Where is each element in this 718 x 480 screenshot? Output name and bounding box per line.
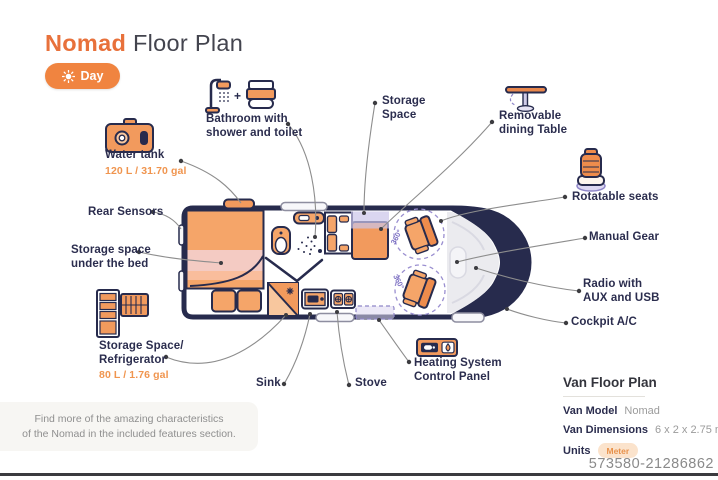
leader-line-water-tank [181,161,241,203]
fan-symbol [287,288,294,295]
listing-id: 573580-21286862 [589,456,714,472]
callout-heating-line2: Control Panel [414,371,502,385]
callout-fridge: Storage Space/ Refrigerator 80 L / 1.76 … [99,340,184,383]
callout-fridge-line2: Refrigerator [99,354,184,368]
callout-radio-line2: AUX and USB [583,292,660,306]
overhead-storage [351,212,389,229]
cab-step [452,313,484,322]
toilet-icon [247,81,275,108]
bottom-divider [0,473,718,476]
callout-rotatable-seats-label: Rotatable seats [572,191,659,205]
bed [187,211,264,289]
heating-control-icon [417,339,457,356]
refrigerator-icon [97,290,148,337]
features-note: Find more of the amazing characteristics… [0,402,258,451]
bench-cushion-right [238,291,262,312]
callout-water-tank: Water tank 120 L / 31.70 gal [105,149,186,178]
callout-radio-line1: Radio with [583,278,660,292]
roof-window [281,203,327,211]
page-title-accent: Nomad [45,30,126,56]
plus-icon: + [234,89,241,103]
callout-rear-sensors-label: Rear Sensors [88,206,163,220]
info-row-van-model: Van Model Nomad [563,405,715,417]
rotatable-seat-icon [577,149,605,191]
van-dimensions-value: 6 x 2 x 2.75 m [655,424,718,436]
callout-dining-table-line2: dining Table [499,124,567,138]
callout-radio: Radio with AUX and USB [583,278,660,305]
callout-heating-line1: Heating System [414,357,502,371]
sun-icon [62,70,75,83]
rear-sensor-bottom [179,271,184,291]
callout-storage-space-line2: Space [382,109,426,123]
water-tank-icon [106,119,153,152]
callout-bathroom-line2: shower and toilet [206,127,302,141]
callout-cockpit-ac-label: Cockpit A/C [571,316,637,330]
shower-icon [206,80,230,113]
callout-dining-table-line1: Removable [499,110,567,124]
info-panel-title: Van Floor Plan [563,375,715,390]
callout-manual-gear-label: Manual Gear [589,231,659,245]
callout-stove-label: Stove [355,377,387,391]
callout-fridge-value: 80 L / 1.76 gal [99,369,184,383]
callout-water-tank-label: Water tank [105,149,186,163]
callout-water-tank-value: 120 L / 31.70 gal [105,165,186,179]
leader-line-fridge [166,315,286,363]
callout-fridge-line1: Storage Space/ [99,340,184,354]
leader-line-storage-space [364,103,375,212]
units-label: Units [563,445,591,457]
leader-line-heating [379,320,409,362]
side-step [316,314,354,322]
callout-sink-label: Sink [256,377,281,391]
callout-stove: Stove [355,377,387,391]
callout-storage-space-line1: Storage [382,95,426,109]
callout-bathroom-line1: Bathroom with [206,113,302,127]
van-model-label: Van Model [563,405,617,417]
day-mode-toggle[interactable]: Day [45,63,120,89]
callout-storage-under-bed: Storage space under the bed [71,244,151,271]
callout-storage-under-bed-line1: Storage space [71,244,151,258]
leader-line-stove [337,312,349,385]
callout-dining-table: Removable dining Table [499,110,567,137]
callout-heating: Heating System Control Panel [414,357,502,384]
leader-line-cockpit-ac [507,309,566,323]
dining-table-icon [506,87,546,111]
day-mode-label: Day [81,69,104,83]
callout-bathroom: Bathroom with shower and toilet [206,113,302,140]
callout-cockpit-ac: Cockpit A/C [571,316,637,330]
info-panel-divider [563,396,645,397]
callout-manual-gear: Manual Gear [589,231,659,245]
info-row-van-dimensions: Van Dimensions 6 x 2 x 2.75 m [563,424,715,436]
page-title: Nomad Floor Plan [45,30,243,57]
features-note-line2: of the Nomad in the included features se… [22,427,236,442]
callout-storage-under-bed-line2: under the bed [71,258,151,272]
heating-unit-footprint [356,306,394,319]
van-model-value: Nomad [624,405,659,417]
callout-storage-space: Storage Space [382,95,426,122]
van-info-panel: Van Floor Plan Van Model Nomad Van Dimen… [563,375,715,465]
van-dimensions-label: Van Dimensions [563,424,648,436]
van-floorplan: 360° 360° [179,200,531,323]
dinette [325,212,389,260]
callout-sink: Sink [256,377,281,391]
leader-line-sink [284,314,310,384]
page-title-rest: Floor Plan [133,30,243,56]
bench-cushion-left [212,291,236,312]
floor-plan-page: 360° 360° [0,0,718,480]
callout-rear-sensors: Rear Sensors [88,206,163,220]
features-note-line1: Find more of the amazing characteristics [34,412,223,427]
callout-rotatable-seats: Rotatable seats [572,191,659,205]
